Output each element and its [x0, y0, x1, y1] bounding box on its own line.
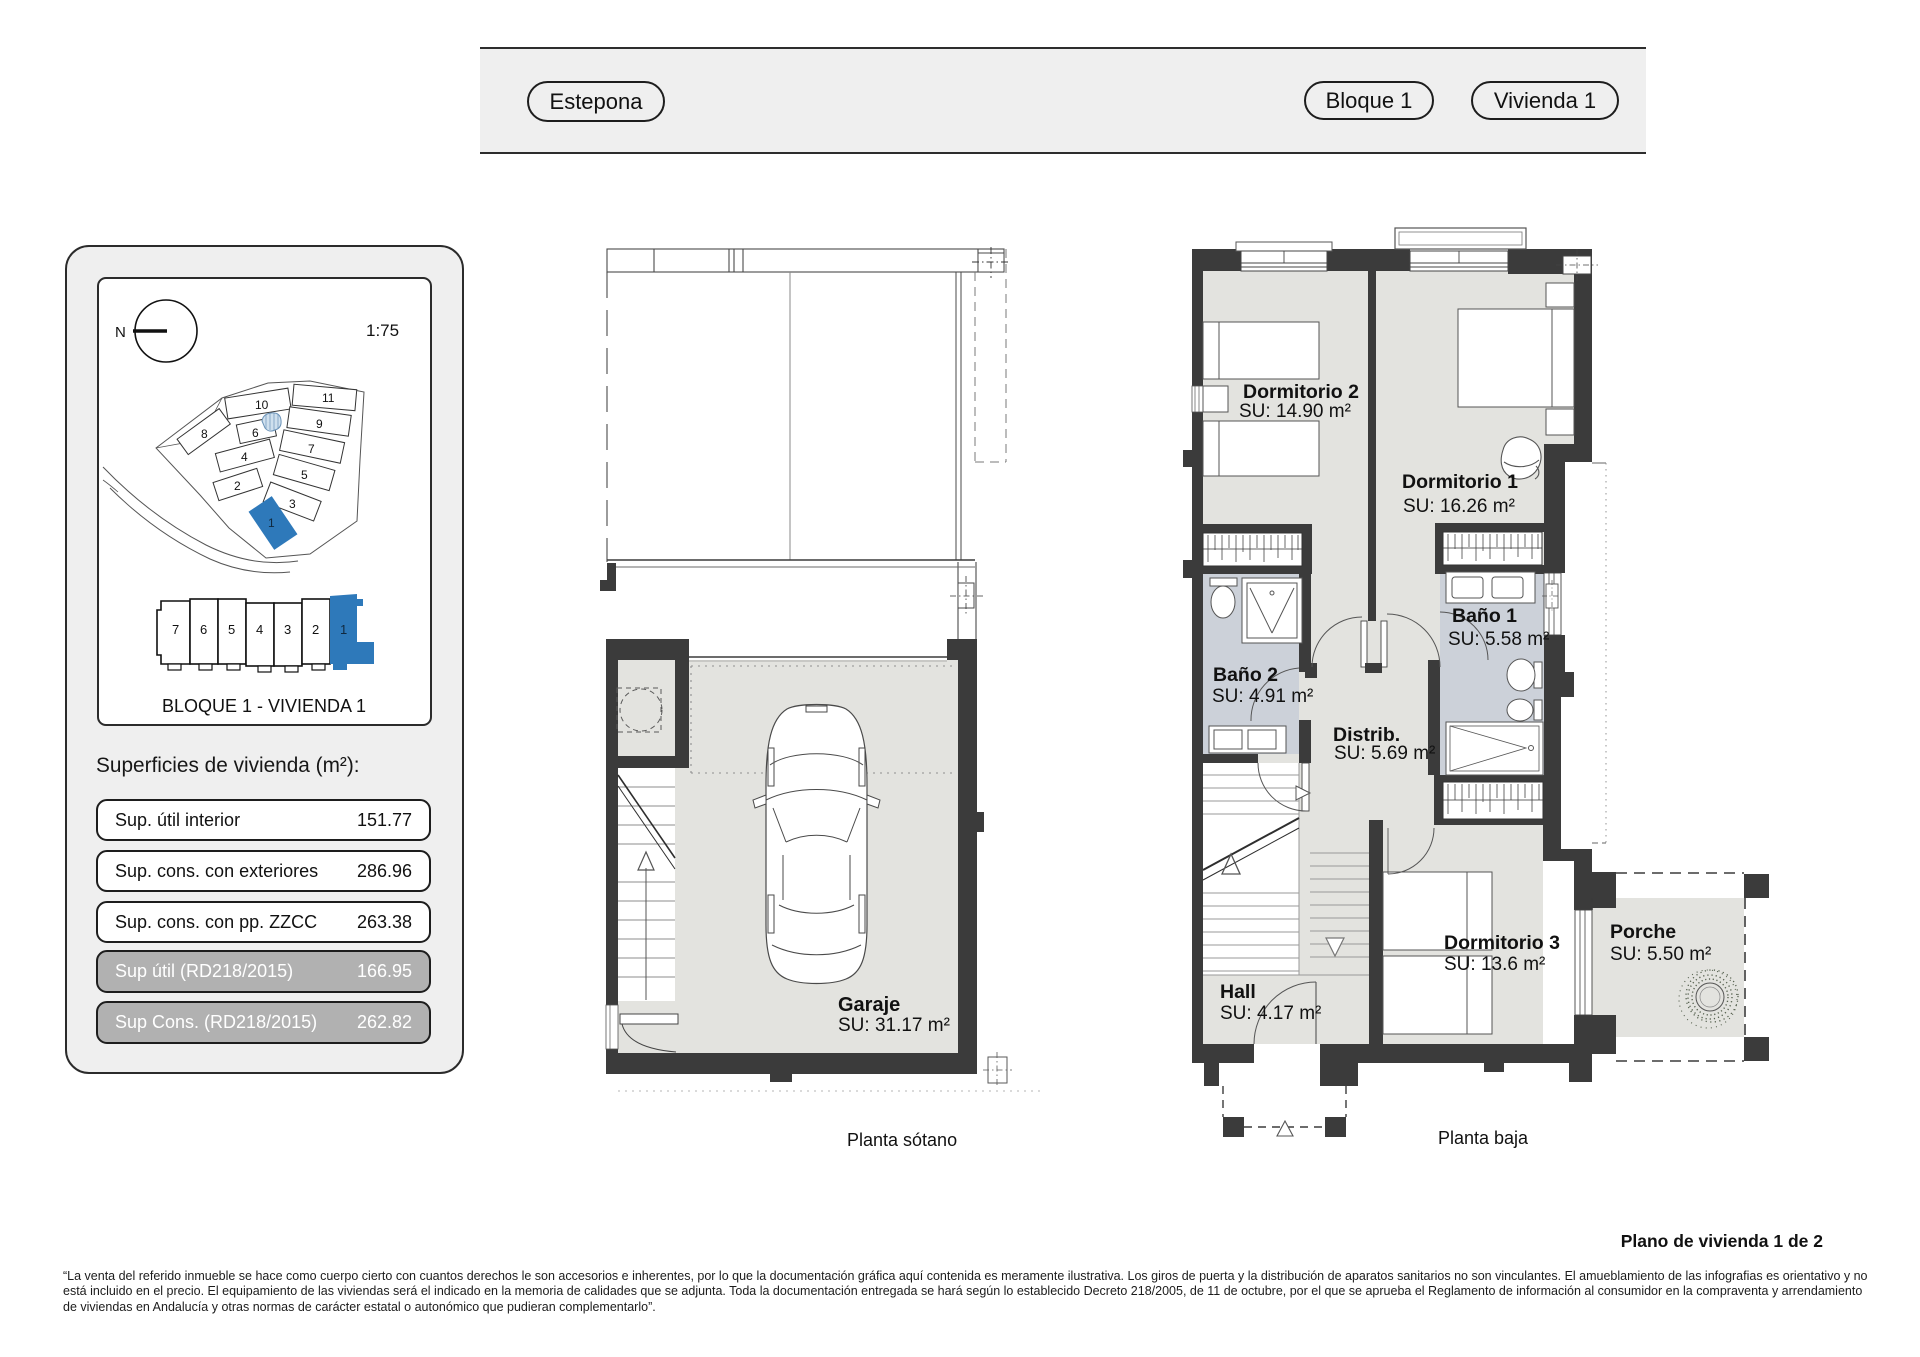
svg-text:11: 11	[322, 391, 335, 405]
svg-text:SU: 5.50 m²: SU: 5.50 m²	[1610, 944, 1711, 965]
svg-text:4: 4	[241, 450, 248, 464]
svg-text:SU: 5.58 m²: SU: 5.58 m²	[1448, 629, 1549, 650]
svg-text:Hall: Hall	[1220, 981, 1256, 1003]
svg-text:7: 7	[172, 622, 179, 637]
svg-text:Baño 1: Baño 1	[1452, 605, 1517, 627]
svg-text:7: 7	[308, 442, 315, 456]
svg-text:SU: 5.69 m²: SU: 5.69 m²	[1334, 743, 1435, 764]
svg-text:Porche: Porche	[1610, 921, 1676, 943]
svg-text:SU: 4.91 m²: SU: 4.91 m²	[1212, 686, 1313, 707]
svg-text:6: 6	[200, 622, 207, 637]
svg-text:1: 1	[268, 516, 275, 530]
svg-text:Dormitorio 1: Dormitorio 1	[1402, 471, 1518, 493]
svg-text:9: 9	[316, 417, 323, 431]
svg-text:BLOQUE 1 - VIVIENDA 1: BLOQUE 1 - VIVIENDA 1	[162, 696, 366, 716]
svg-text:5: 5	[228, 622, 235, 637]
svg-text:SU: 14.90 m²: SU: 14.90 m²	[1239, 401, 1351, 422]
svg-text:Garaje: Garaje	[838, 994, 900, 1016]
svg-text:2: 2	[312, 622, 319, 637]
svg-text:2: 2	[234, 479, 241, 493]
svg-text:1: 1	[340, 622, 347, 637]
svg-text:SU: 13.6 m²: SU: 13.6 m²	[1444, 954, 1545, 975]
svg-text:1:75: 1:75	[366, 321, 399, 340]
svg-text:10: 10	[255, 398, 269, 412]
svg-text:8: 8	[201, 427, 208, 441]
svg-text:SU: 31.17 m²: SU: 31.17 m²	[838, 1015, 950, 1036]
svg-text:Dormitorio 2: Dormitorio 2	[1243, 381, 1359, 403]
svg-text:6: 6	[252, 426, 259, 440]
svg-text:Baño 2: Baño 2	[1213, 664, 1278, 686]
svg-text:SU: 16.26 m²: SU: 16.26 m²	[1403, 496, 1515, 517]
svg-text:3: 3	[284, 622, 291, 637]
svg-text:SU: 4.17 m²: SU: 4.17 m²	[1220, 1003, 1321, 1024]
svg-text:5: 5	[301, 468, 308, 482]
svg-text:Dormitorio 3: Dormitorio 3	[1444, 932, 1560, 954]
svg-text:4: 4	[256, 622, 263, 637]
svg-text:3: 3	[289, 497, 296, 511]
svg-text:N: N	[115, 324, 126, 341]
